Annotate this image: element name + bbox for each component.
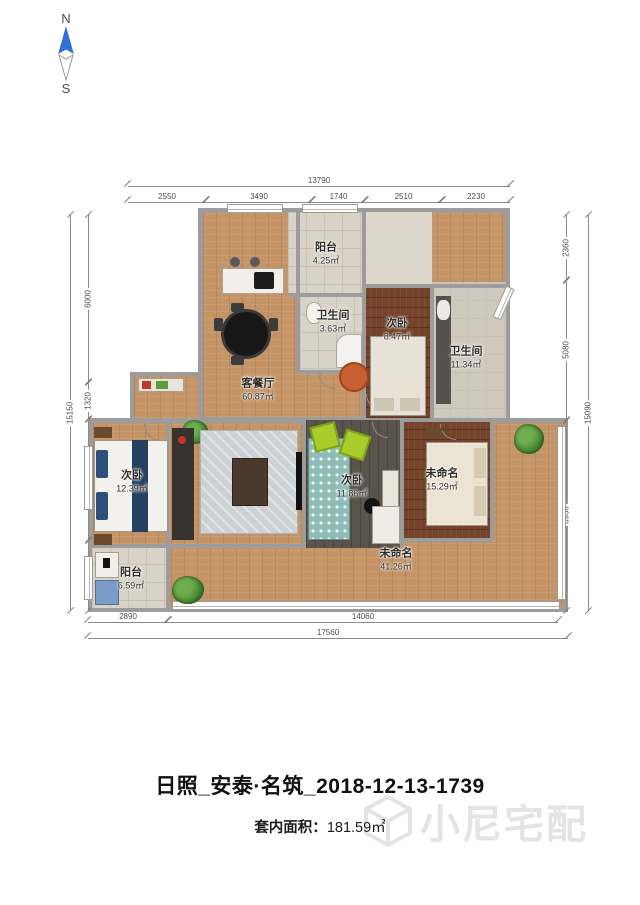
- wall: [430, 284, 434, 418]
- label-unnamed-4126: 未命名41.26㎡: [380, 548, 413, 573]
- window-bedroom-left: [84, 446, 93, 510]
- dim-right-seg2: 5080: [566, 280, 567, 420]
- dim-top-seg4: 2510: [365, 202, 442, 203]
- kitchen-island: [222, 268, 284, 294]
- dining-chair: [231, 303, 244, 312]
- label-bath-large: 卫生间11.34㎡: [450, 346, 483, 371]
- dim-top-overall: 13790: [128, 186, 510, 187]
- compass-north-label: N: [48, 12, 84, 26]
- label-bath-small: 卫生间3.63㎡: [317, 310, 350, 335]
- dim-right-seg3: 6930: [566, 420, 567, 610]
- window-bottom-wall: [172, 601, 560, 610]
- dim-right-seg1: 2360: [566, 215, 567, 280]
- sink: [437, 300, 450, 320]
- wall: [490, 422, 494, 540]
- wall: [402, 538, 492, 542]
- window-balcony-bottom: [84, 556, 93, 600]
- pillow: [96, 450, 108, 478]
- shoe-cabinet-item: [142, 381, 151, 389]
- nightstand: [94, 534, 112, 545]
- window-balcony-top: [302, 204, 358, 213]
- inner-area-label: 套内面积：: [254, 820, 327, 836]
- dining-chair: [214, 318, 223, 331]
- dining-chair: [231, 356, 244, 365]
- pillow: [96, 492, 108, 520]
- label-living-dining: 客餐厅60.87㎡: [242, 378, 275, 403]
- stool: [230, 257, 240, 267]
- hallway-floor: [364, 212, 432, 288]
- dim-bottom-seg1: 2890: [88, 622, 168, 623]
- label-balcony-top: 阳台4.25㎡: [313, 242, 340, 267]
- wall: [364, 284, 506, 288]
- nightstand: [94, 427, 112, 438]
- wall: [92, 544, 304, 548]
- tv: [296, 452, 302, 510]
- dim-right-overall: 15090: [588, 215, 589, 610]
- pillow: [474, 448, 486, 478]
- plan-title: 日照_安泰·名筑_2018-12-13-1739: [0, 770, 640, 800]
- wall: [296, 212, 300, 372]
- dim-bottom-overall: 17560: [88, 638, 568, 639]
- compass-needle-icon: [56, 26, 76, 82]
- dim-left-overall: 15150: [70, 215, 71, 610]
- dim-left-seg1: 6000: [88, 215, 89, 382]
- dining-chair: [269, 318, 278, 331]
- dim-left-seg2: 1320: [88, 382, 89, 419]
- pillow: [374, 398, 394, 411]
- dim-top-seg2: 3490: [206, 202, 312, 203]
- plant: [172, 576, 204, 604]
- nightstand: [426, 428, 442, 439]
- dim-top-seg3: 1740: [312, 202, 365, 203]
- wardrobe: [172, 428, 194, 540]
- dim-top-seg5: 2230: [442, 202, 510, 203]
- label-bedroom-1239: 次卧12.39㎡: [116, 470, 148, 495]
- label-bedroom-1186: 次卧11.86㎡: [337, 475, 368, 500]
- wall: [400, 420, 404, 548]
- pillow: [474, 486, 486, 516]
- washing-machine: [95, 580, 119, 605]
- cooktop: [254, 272, 274, 289]
- coffee-table: [232, 458, 268, 506]
- label-balcony-bottom: 阳台6.59㎡: [118, 567, 145, 592]
- label-bedroom-847: 次卧8.47㎡: [384, 318, 411, 343]
- window-kitchen: [227, 204, 283, 213]
- dim-bottom-seg2: 14060: [168, 622, 558, 623]
- floorplan-page: N S 13790 2550 3490 1740 2510 2230 15150…: [0, 0, 640, 905]
- label-unnamed-1529: 未命名15.29㎡: [426, 468, 459, 493]
- stool: [250, 257, 260, 267]
- compass-south-label: S: [48, 82, 84, 96]
- inner-area-value: 181.59㎡: [327, 820, 386, 836]
- dim-top-seg1: 2550: [128, 202, 206, 203]
- window-right-wall: [557, 426, 566, 600]
- plant: [514, 424, 544, 454]
- pillow: [400, 398, 420, 411]
- compass: N S: [48, 12, 84, 97]
- laundry-item: [103, 558, 110, 568]
- wall: [302, 420, 306, 548]
- wardrobe-decor: [178, 436, 186, 444]
- wall: [288, 293, 366, 297]
- dining-table: [224, 312, 268, 356]
- shoe-cabinet-item: [156, 381, 168, 389]
- side-table: [372, 506, 400, 544]
- inner-area-line: 套内面积：181.59㎡: [0, 816, 640, 837]
- round-chair: [339, 362, 369, 392]
